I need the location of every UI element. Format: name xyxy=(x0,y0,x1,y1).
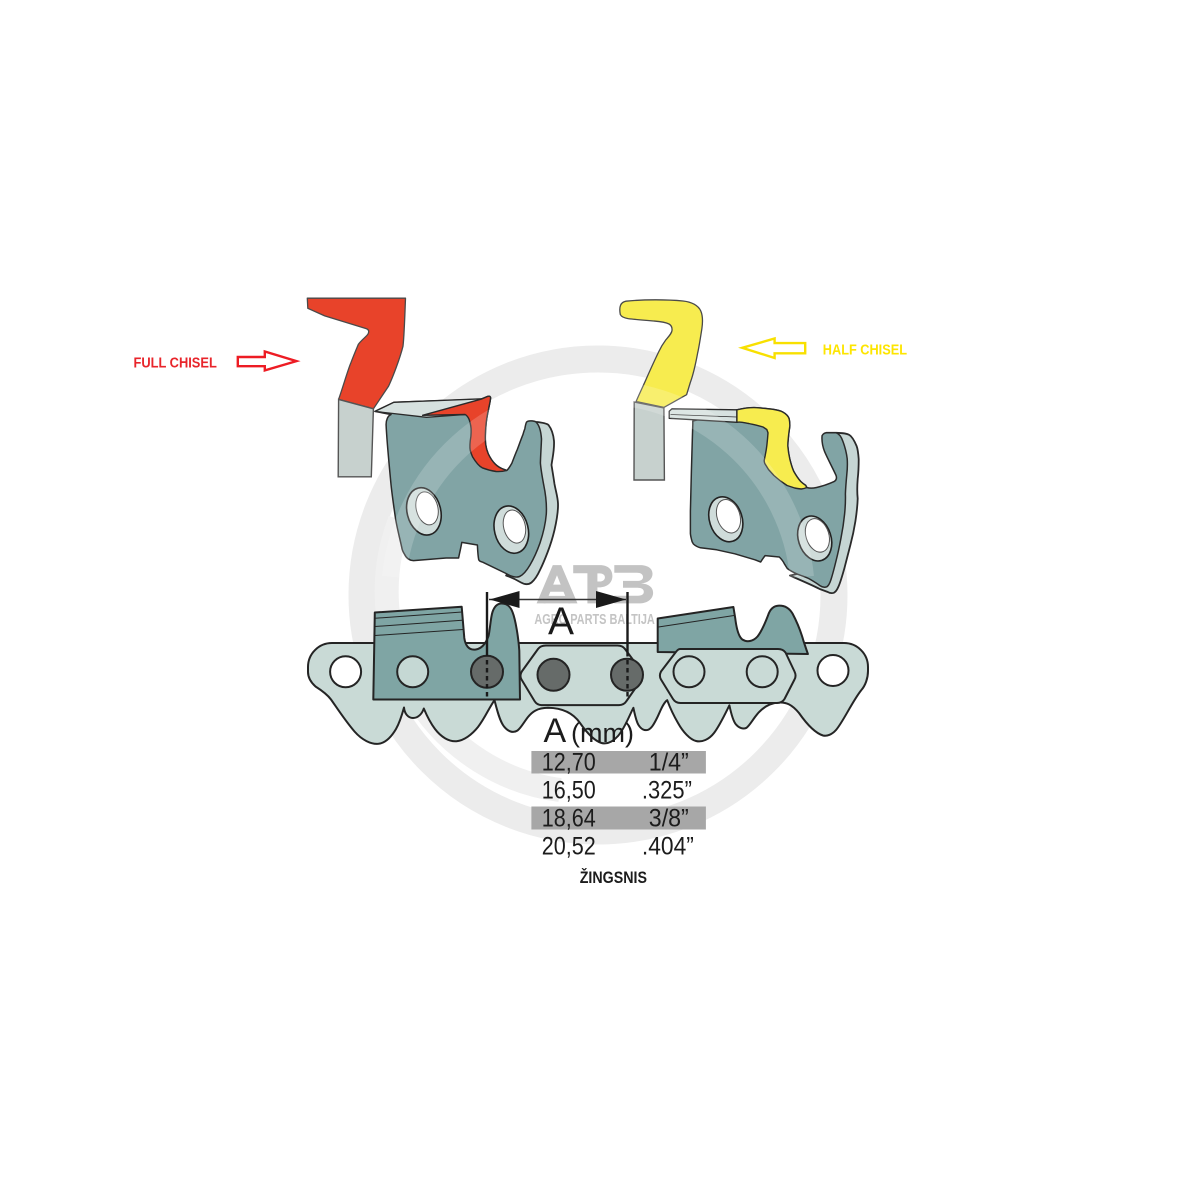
svg-text:A: A xyxy=(548,601,574,644)
svg-text:ŽINGSNIS: ŽINGSNIS xyxy=(580,868,647,887)
svg-text:FULL CHISEL: FULL CHISEL xyxy=(134,355,217,371)
svg-text:.325”: .325” xyxy=(642,777,692,805)
svg-text:3/8”: 3/8” xyxy=(649,805,689,833)
svg-text:12,70: 12,70 xyxy=(542,749,596,777)
svg-text:A: A xyxy=(544,712,567,750)
svg-text:1/4”: 1/4” xyxy=(649,749,689,777)
svg-text:(mm): (mm) xyxy=(571,718,634,748)
svg-text:HALF CHISEL: HALF CHISEL xyxy=(823,342,907,358)
svg-text:16,50: 16,50 xyxy=(542,777,596,805)
svg-text:.404”: .404” xyxy=(642,833,694,861)
svg-text:20,52: 20,52 xyxy=(542,833,596,861)
svg-text:18,64: 18,64 xyxy=(542,805,596,833)
